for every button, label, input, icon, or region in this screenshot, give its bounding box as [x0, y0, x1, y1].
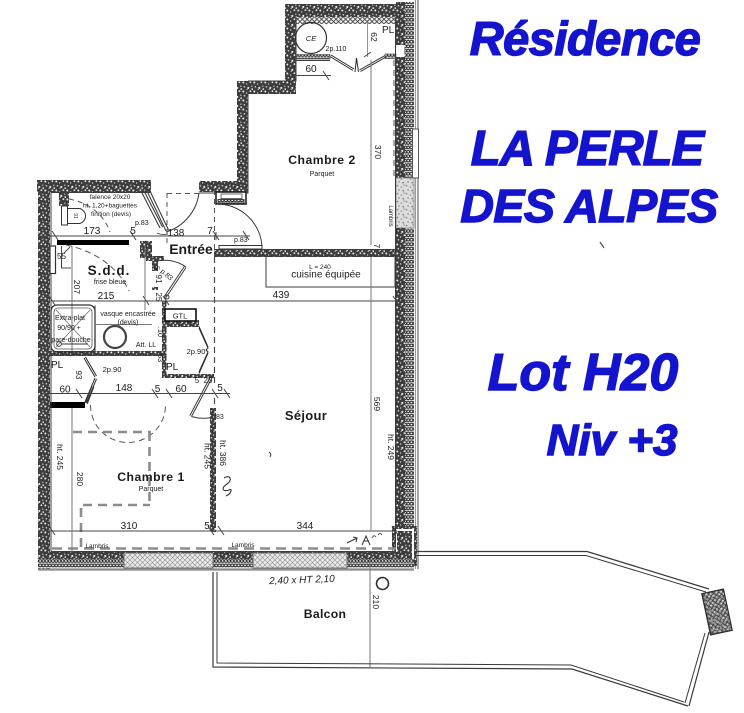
svg-text:60: 60 — [305, 64, 317, 75]
svg-text:5: 5 — [130, 226, 136, 237]
svg-text:63: 63 — [156, 354, 165, 362]
svg-text:25: 25 — [204, 376, 213, 385]
svg-text:25: 25 — [154, 293, 163, 302]
svg-text:60: 60 — [59, 385, 71, 396]
svg-text:Séjour: Séjour — [285, 408, 327, 423]
svg-text:90/90 +: 90/90 + — [57, 325, 81, 332]
svg-text:Lambris: Lambris — [85, 543, 109, 550]
svg-text:5: 5 — [204, 521, 210, 532]
svg-text:LA PERLE: LA PERLE — [471, 122, 706, 176]
svg-text:148: 148 — [116, 383, 133, 394]
svg-text:173: 173 — [84, 226, 101, 237]
svg-text:faïence 20x20: faïence 20x20 — [90, 194, 131, 201]
svg-text:344: 344 — [297, 521, 314, 532]
svg-text:2p.90: 2p.90 — [187, 347, 206, 356]
svg-text:p.83: p.83 — [234, 237, 248, 244]
svg-text:2p.110: 2p.110 — [326, 46, 347, 53]
svg-text:CE: CE — [306, 34, 317, 43]
svg-text:pare-douche: pare-douche — [51, 337, 90, 344]
svg-text:7: 7 — [207, 226, 213, 237]
svg-text:PL: PL — [382, 25, 395, 36]
svg-text:7: 7 — [372, 244, 381, 249]
svg-text:Lambris: Lambris — [231, 542, 255, 549]
svg-text:2,40 x HT 2,10: 2,40 x HT 2,10 — [268, 574, 335, 587]
svg-text:ht. 245: ht. 245 — [203, 443, 213, 469]
svg-text:280: 280 — [75, 472, 85, 486]
svg-text:210: 210 — [371, 595, 381, 609]
svg-text:310: 310 — [121, 521, 138, 532]
svg-text:55: 55 — [57, 252, 66, 261]
svg-text:138: 138 — [168, 228, 185, 239]
svg-text:2p.90: 2p.90 — [103, 365, 122, 374]
svg-text:Lot H20: Lot H20 — [488, 344, 679, 402]
svg-text:215: 215 — [98, 291, 115, 302]
svg-text:60: 60 — [175, 384, 187, 395]
svg-text:5: 5 — [155, 384, 161, 395]
svg-text:Entrée: Entrée — [169, 241, 213, 257]
svg-text:370: 370 — [373, 145, 383, 159]
svg-text:Extra-plat: Extra-plat — [55, 315, 85, 322]
svg-text:62: 62 — [369, 32, 379, 42]
svg-text:5: 5 — [217, 383, 223, 394]
svg-text:ht. 386: ht. 386 — [218, 440, 228, 466]
svg-text:Parquet: Parquet — [310, 171, 335, 178]
svg-text:Chambre 1: Chambre 1 — [117, 470, 185, 484]
svg-text:PL: PL — [166, 362, 179, 373]
svg-text:Balcon: Balcon — [304, 607, 346, 621]
svg-text:ht. 1,20+baguettes: ht. 1,20+baguettes — [83, 203, 138, 210]
svg-text:(devis): (devis) — [117, 320, 138, 327]
svg-text:p.83: p.83 — [135, 220, 149, 227]
svg-text:5: 5 — [153, 266, 160, 270]
svg-text:91: 91 — [154, 275, 163, 284]
svg-text:.10: .10 — [156, 327, 165, 337]
svg-text:ht. 245: ht. 245 — [55, 444, 65, 470]
svg-text:Niv +3: Niv +3 — [547, 416, 678, 465]
svg-text:finition (devis): finition (devis) — [91, 211, 131, 218]
svg-text:S.d.d.: S.d.d. — [88, 263, 131, 278]
svg-text:cuisine équipée: cuisine équipée — [291, 270, 361, 281]
svg-text:93: 93 — [74, 371, 83, 380]
svg-text:Chambre 2: Chambre 2 — [288, 153, 356, 167]
svg-text:ht. 249: ht. 249 — [386, 434, 396, 460]
svg-text:Att. LL: Att. LL — [136, 342, 156, 349]
svg-text:Lambris: Lambris — [387, 205, 393, 226]
svg-text:GTL: GTL — [173, 312, 188, 321]
svg-text:5: 5 — [195, 376, 200, 385]
svg-text:207: 207 — [72, 280, 82, 294]
svg-text:83: 83 — [216, 414, 224, 421]
svg-text:vasque encastrée: vasque encastrée — [100, 311, 155, 318]
svg-text:PL: PL — [51, 360, 64, 371]
svg-text:Parquet: Parquet — [139, 486, 164, 493]
svg-text:439: 439 — [273, 290, 290, 301]
svg-text:Résidence: Résidence — [470, 12, 701, 65]
svg-text:91: 91 — [72, 213, 78, 219]
svg-text:569: 569 — [372, 397, 382, 411]
svg-text:DES ALPES: DES ALPES — [460, 180, 718, 232]
svg-text:frise bleue: frise bleue — [94, 279, 126, 286]
